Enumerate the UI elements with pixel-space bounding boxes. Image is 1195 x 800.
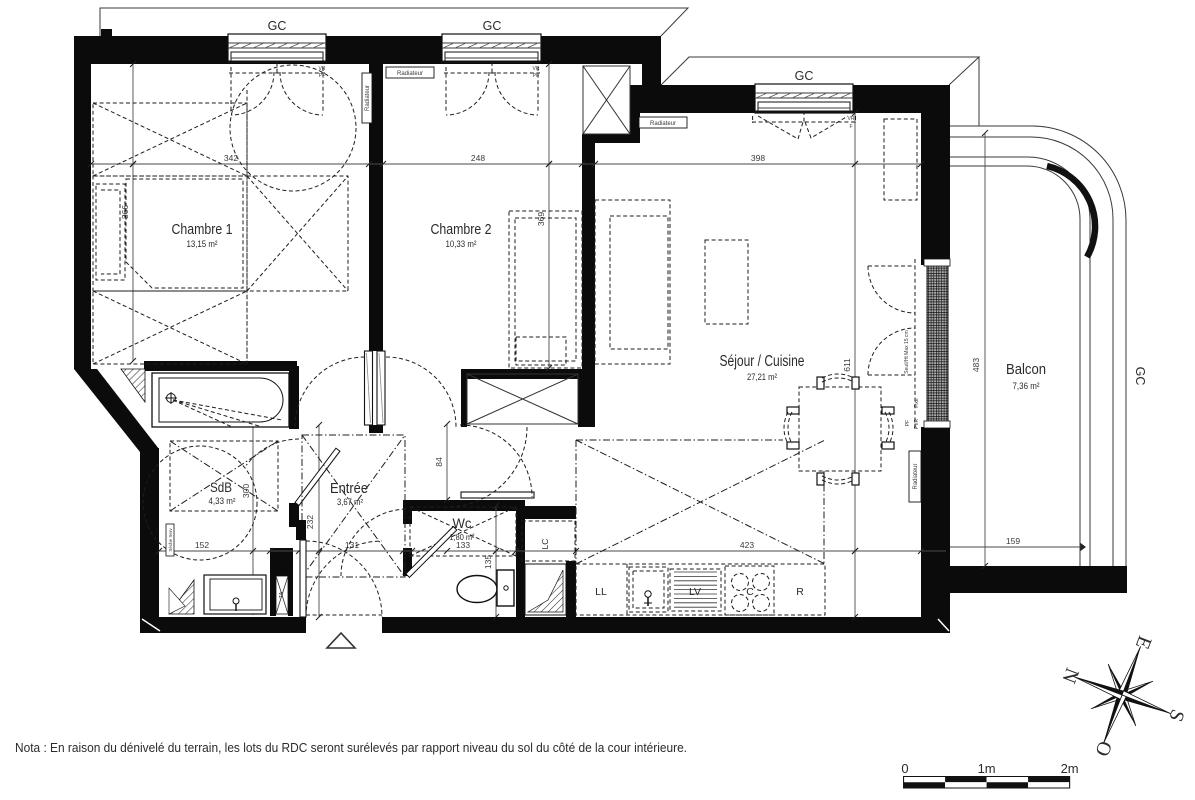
- svg-text:R: R: [796, 586, 804, 598]
- svg-text:GC: GC: [795, 69, 814, 83]
- svg-text:159: 159: [1006, 536, 1020, 546]
- svg-text:PF: PF: [533, 73, 539, 79]
- svg-text:27,21 m²: 27,21 m²: [747, 372, 777, 383]
- svg-text:10,33 m²: 10,33 m²: [446, 239, 477, 250]
- svg-text:Seuil/Ht Max 15 cm: Seuil/Ht Max 15 cm: [904, 330, 910, 373]
- svg-text:135: 135: [483, 555, 493, 569]
- svg-text:483: 483: [971, 358, 981, 372]
- svg-text:VR: VR: [319, 66, 326, 72]
- svg-text:PVR: PVR: [914, 418, 920, 429]
- svg-text:Wc: Wc: [453, 515, 472, 531]
- svg-text:7,36 m²: 7,36 m²: [1013, 381, 1040, 392]
- svg-text:300: 300: [241, 484, 251, 498]
- svg-text:PF: PF: [905, 420, 911, 426]
- svg-text:Chambre 1: Chambre 1: [172, 221, 233, 238]
- svg-text:0: 0: [901, 761, 908, 776]
- svg-text:248: 248: [471, 153, 485, 163]
- svg-text:Séjour / Cuisine: Séjour / Cuisine: [720, 353, 805, 370]
- svg-text:Balcon: Balcon: [1006, 361, 1046, 378]
- svg-text:Radiateur: Radiateur: [650, 121, 676, 127]
- svg-text:C: C: [746, 586, 754, 598]
- svg-text:152: 152: [195, 540, 209, 550]
- svg-text:13,15 m²: 13,15 m²: [187, 239, 218, 250]
- svg-text:Entrée: Entrée: [330, 481, 368, 497]
- svg-text:SdB: SdB: [210, 479, 232, 495]
- svg-text:GC: GC: [483, 19, 502, 33]
- svg-text:Fixe: Fixe: [914, 398, 920, 408]
- svg-text:1m: 1m: [978, 761, 996, 776]
- svg-text:Radiateur: Radiateur: [397, 71, 423, 77]
- svg-text:398: 398: [751, 153, 765, 163]
- svg-text:GC: GC: [268, 19, 287, 33]
- svg-text:342: 342: [224, 153, 238, 163]
- svg-text:611: 611: [842, 358, 852, 372]
- svg-text:Chambre 2: Chambre 2: [431, 221, 492, 238]
- svg-text:TA: TA: [279, 591, 285, 598]
- svg-text:2m: 2m: [1061, 761, 1079, 776]
- svg-text:PF: PF: [319, 73, 325, 79]
- svg-text:Radiateur: Radiateur: [913, 463, 919, 489]
- svg-text:423: 423: [740, 540, 754, 550]
- svg-text:232: 232: [305, 515, 315, 529]
- svg-text:VR: VR: [848, 116, 855, 122]
- svg-text:3,67 m²: 3,67 m²: [337, 497, 363, 507]
- svg-text:4,33 m²: 4,33 m²: [209, 496, 236, 506]
- svg-text:Nota : En raison du dénivelé d: Nota : En raison du dénivelé du terrain,…: [15, 740, 687, 755]
- svg-text:LL: LL: [595, 586, 607, 598]
- svg-text:Sèche Serv: Sèche Serv: [168, 528, 173, 552]
- svg-text:VR: VR: [533, 66, 540, 72]
- svg-text:LV: LV: [689, 586, 701, 598]
- svg-text:F: F: [849, 124, 852, 130]
- svg-text:Radiateur: Radiateur: [365, 85, 371, 111]
- svg-text:LC: LC: [540, 539, 550, 550]
- svg-text:1,80 m²: 1,80 m²: [450, 532, 475, 542]
- svg-text:369: 369: [536, 212, 546, 226]
- svg-text:GC: GC: [1133, 367, 1147, 386]
- svg-text:84: 84: [434, 457, 444, 467]
